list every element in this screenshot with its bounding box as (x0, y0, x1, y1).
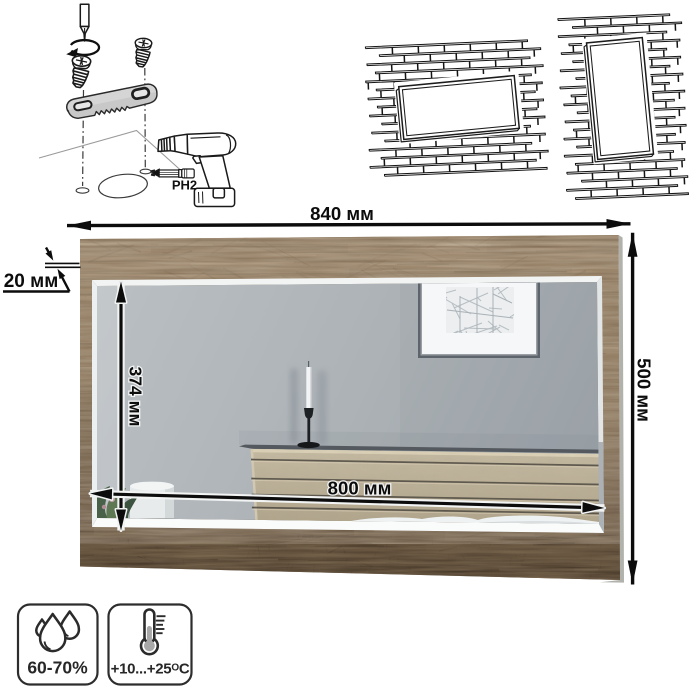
svg-text:800 мм: 800 мм (328, 478, 392, 499)
svg-text:500 мм: 500 мм (634, 358, 655, 422)
svg-text:374 мм: 374 мм (126, 367, 146, 427)
svg-text:20 мм: 20 мм (4, 271, 59, 292)
svg-text:60-70%: 60-70% (27, 658, 88, 678)
svg-text:PH2: PH2 (172, 178, 197, 193)
svg-text:840 мм: 840 мм (310, 203, 374, 224)
svg-text:+10...+25OC: +10...+25OC (111, 661, 190, 678)
